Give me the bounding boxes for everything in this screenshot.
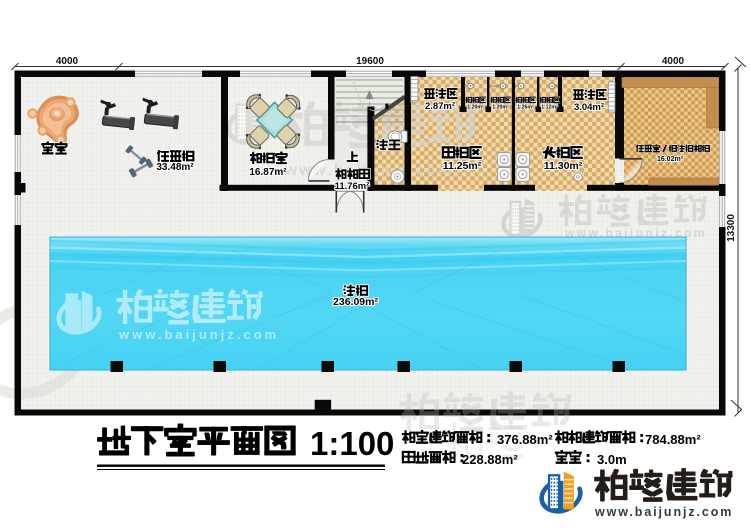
svg-text:3.0m: 3.0m	[597, 452, 627, 467]
svg-text:11.30m²: 11.30m²	[544, 160, 583, 172]
svg-text:16.02m²: 16.02m²	[657, 156, 684, 163]
svg-text:3.04m²: 3.04m²	[574, 102, 604, 113]
svg-text:33.48m²: 33.48m²	[156, 162, 194, 173]
svg-text:376.88m²: 376.88m²	[497, 432, 553, 447]
svg-text:1.12m²: 1.12m²	[541, 105, 558, 111]
svg-text:16.87m²: 16.87m²	[249, 167, 287, 178]
svg-text:1.20m²: 1.20m²	[492, 105, 509, 111]
svg-text:www.baijunjz.com: www.baijunjz.com	[594, 505, 733, 519]
svg-text:236.09m²: 236.09m²	[333, 296, 378, 308]
svg-text:1.26m²: 1.26m²	[517, 105, 534, 111]
svg-text:2.87m²: 2.87m²	[425, 101, 455, 112]
svg-text:www.baijunjz.com: www.baijunjz.com	[118, 327, 279, 342]
svg-text:784.88m²: 784.88m²	[645, 432, 701, 447]
svg-text:13300: 13300	[726, 214, 737, 242]
svg-text:11.25m²: 11.25m²	[443, 160, 482, 172]
svg-text:1.20m²: 1.20m²	[467, 105, 484, 111]
svg-text:4000: 4000	[662, 56, 685, 67]
svg-text:228.88m²: 228.88m²	[462, 452, 518, 467]
svg-text:19600: 19600	[356, 56, 384, 67]
svg-text:11.76m²: 11.76m²	[335, 181, 370, 192]
svg-text:1:100: 1:100	[310, 425, 394, 462]
svg-text:4000: 4000	[56, 56, 79, 67]
